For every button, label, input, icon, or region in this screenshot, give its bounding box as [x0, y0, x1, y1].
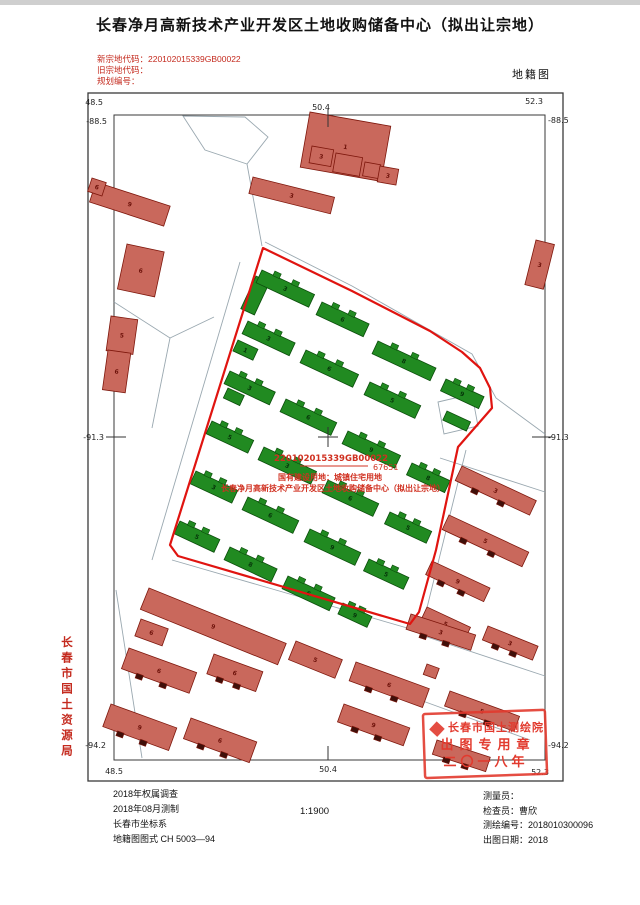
coordinate-label: -88.5 — [86, 117, 107, 126]
red-building — [333, 153, 363, 176]
green-building: 6 — [242, 493, 301, 533]
green-building: 5 — [385, 508, 434, 543]
annotation-parcel-code: 220102015339GB00022 — [274, 454, 388, 464]
coordinate-label: -94.2 — [85, 741, 106, 750]
red-building: 9 — [424, 561, 490, 605]
green-building: 6 — [316, 298, 371, 337]
map-type-label: 地籍图 — [512, 66, 551, 82]
red-building: 5 — [441, 515, 529, 570]
cadastral-sheet: { "header": { "title": "长春净月高新技术产业开发区土地收… — [0, 0, 640, 905]
green-building: 6 — [280, 395, 339, 435]
coordinate-label: 50.4 — [312, 103, 330, 112]
stamp-org: 长春市国土测绘院 — [448, 720, 544, 734]
surveyor: 测量员： — [483, 789, 593, 804]
green-building: 5 — [364, 555, 411, 589]
survey-number: 测绘编号：2018010300096 — [483, 818, 593, 833]
red-building: 5 — [289, 641, 343, 678]
coordinate-label: 52.3 — [525, 97, 543, 106]
red-building — [423, 664, 439, 679]
green-building: 8 — [372, 337, 438, 381]
stamp-year: 二〇一八年 — [443, 754, 528, 770]
survey-year: 2018年权属调查 — [113, 787, 215, 802]
green-building: 9 — [304, 525, 363, 565]
coordinate-label: -91.3 — [83, 433, 104, 442]
red-building: 6 — [135, 619, 168, 646]
red-building: 6 — [348, 662, 430, 711]
red-building: 3 — [454, 466, 537, 519]
red-building: 9 — [101, 704, 176, 754]
map-spec: 地籍图图式 CH 5003—94 — [113, 832, 215, 847]
page-title: 长春净月高新技术产业开发区土地收购储备中心（拟出让宗地） — [0, 14, 640, 35]
coordinate-label: 50.4 — [319, 765, 337, 774]
land-bureau-vertical-label: 长春市国土资源局 — [58, 636, 74, 760]
inspector: 检查员：曹欣 — [483, 804, 593, 819]
street-line — [152, 262, 240, 560]
red-building: 6 — [205, 654, 262, 695]
red-building: 3 — [481, 626, 538, 664]
issue-date: 出图日期：2018 — [483, 833, 593, 848]
survey-info-block: 2018年权属调查 2018年08月测制 长春市坐标系 地籍图图式 CH 500… — [113, 787, 215, 847]
red-building: 6 — [117, 244, 164, 297]
red-building: 3 — [377, 166, 398, 185]
red-building: 3 — [249, 177, 335, 214]
red-building: 5 — [106, 316, 138, 354]
annotation-area: 67651 — [373, 463, 398, 472]
green-building: 5 — [364, 378, 423, 418]
red-building: 9 — [336, 704, 410, 750]
planning-number: 规划编号： — [97, 76, 241, 87]
street-line — [152, 338, 170, 428]
red-building: 6 — [102, 350, 130, 393]
stamp-purpose: 出图专用章 — [440, 737, 535, 753]
survey-date: 2018年08月测制 — [113, 802, 215, 817]
coordinate-system: 长春市坐标系 — [113, 817, 215, 832]
annotation-owner: 长春净月高新技术产业开发区土地收购储备中心（拟出让宗地） — [221, 483, 445, 493]
street-line — [183, 116, 268, 164]
coordinate-label: -94.2 — [548, 741, 569, 750]
red-building: 3 — [309, 146, 334, 167]
green-building: 9 — [338, 599, 374, 627]
green-building: 3 — [256, 266, 316, 307]
map-scale: 1:1900 — [300, 806, 329, 817]
green-building: 6 — [282, 572, 337, 611]
green-building: 8 — [224, 543, 279, 582]
staff-info-block: 测量员： 检查员：曹欣 测绘编号：2018010300096 出图日期：2018 — [483, 789, 593, 847]
red-building: 6 — [182, 718, 257, 766]
coordinate-label: 48.5 — [85, 98, 103, 107]
stamp-diamond-icon — [429, 721, 445, 737]
parcel-codes-block: 新宗地代码：220102015339GB00022 旧宗地代码： 规划编号： — [97, 54, 241, 87]
green-building: 5 — [206, 417, 256, 453]
old-parcel-code: 旧宗地代码： — [97, 65, 241, 76]
green-building: 1 — [233, 340, 258, 360]
cadastral-map-canvas: 1333396656359539666965369536893165369853… — [0, 0, 640, 905]
green-building: 5 — [174, 517, 222, 552]
coordinate-label: -91.3 — [548, 433, 569, 442]
coordinate-label: 48.5 — [105, 767, 123, 776]
street-line — [247, 164, 262, 246]
new-parcel-code: 新宗地代码：220102015339GB00022 — [97, 54, 241, 65]
green-building: 6 — [300, 346, 360, 387]
annotation-land-use: 国有建设用地：城镇住宅用地 — [278, 472, 382, 482]
red-building: 3 — [525, 240, 555, 289]
coordinate-label: -88.5 — [548, 116, 569, 125]
